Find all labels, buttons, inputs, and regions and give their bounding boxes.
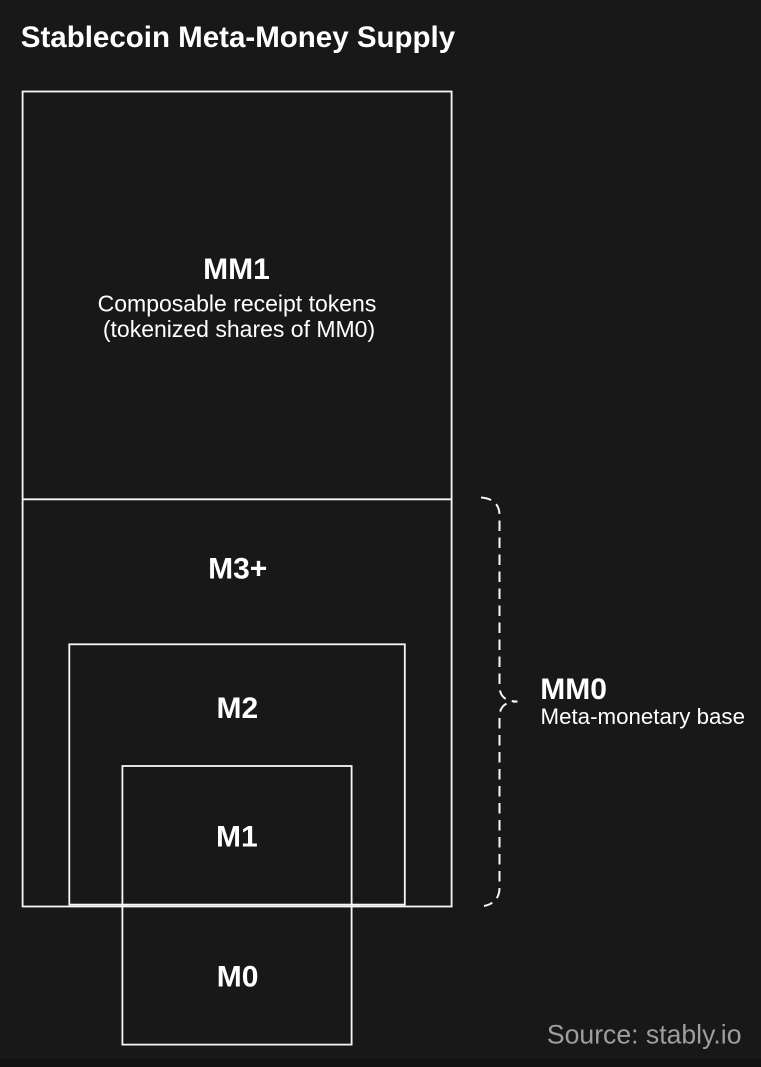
svg-text:M3+: M3+ [208,553,267,586]
svg-text:M1: M1 [216,820,258,853]
svg-text:M0: M0 [217,961,259,994]
svg-text:Composable receipt tokens: Composable receipt tokens [98,291,377,317]
svg-text:MM1: MM1 [203,253,270,286]
svg-text:(tokenized shares of MM0): (tokenized shares of MM0) [103,316,375,342]
svg-text:Meta-monetary base: Meta-monetary base [541,704,745,729]
svg-text:MM0: MM0 [540,673,607,706]
svg-text:M2: M2 [217,692,259,725]
svg-text:Stablecoin Meta-Money Supply: Stablecoin Meta-Money Supply [21,21,456,54]
svg-text:Source: stably.io: Source: stably.io [547,1020,742,1050]
